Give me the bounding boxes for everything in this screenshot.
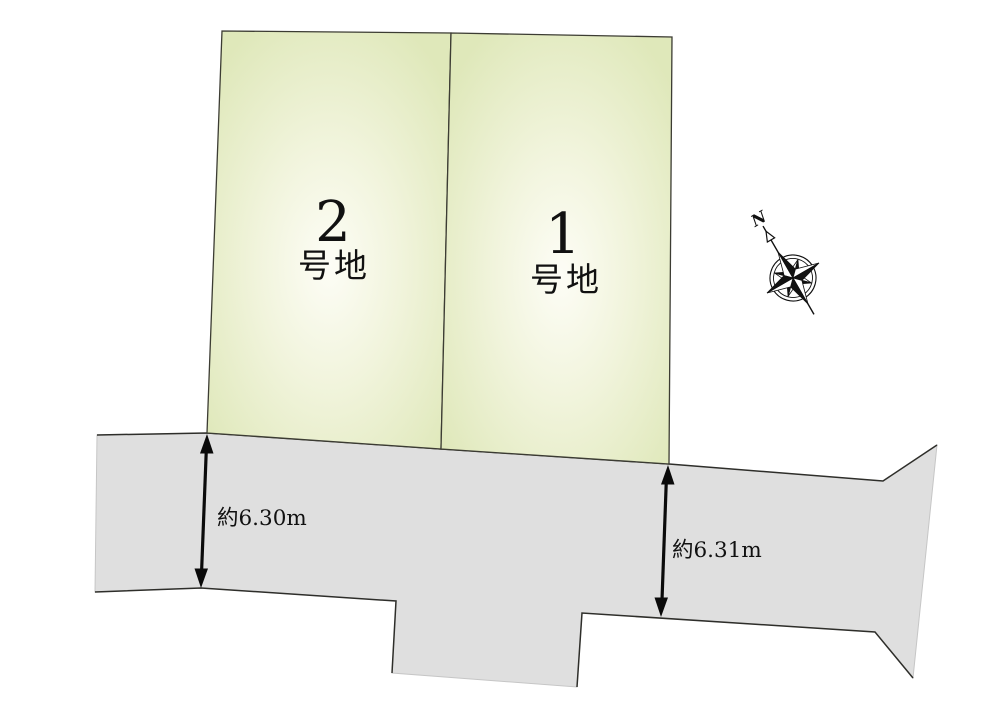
plot-1-suffix: 号地 bbox=[530, 260, 602, 299]
dimension-label-left: 約6.30m bbox=[217, 506, 307, 531]
compass-rose: N bbox=[728, 195, 840, 329]
site-plan-diagram: 2 号地 1 号地 約6.30m 約6.31m bbox=[0, 0, 1000, 707]
dimension-label-right: 約6.31m bbox=[672, 538, 762, 563]
plot-1-number: 1 bbox=[545, 202, 581, 267]
plot-2-suffix: 号地 bbox=[298, 246, 370, 285]
compass-north-label: N bbox=[747, 206, 771, 231]
road-area bbox=[95, 433, 937, 687]
compass-north-arrowhead-icon bbox=[762, 229, 774, 242]
compass-star-icon bbox=[752, 237, 834, 319]
road-edge-bottom-left bbox=[95, 588, 396, 673]
